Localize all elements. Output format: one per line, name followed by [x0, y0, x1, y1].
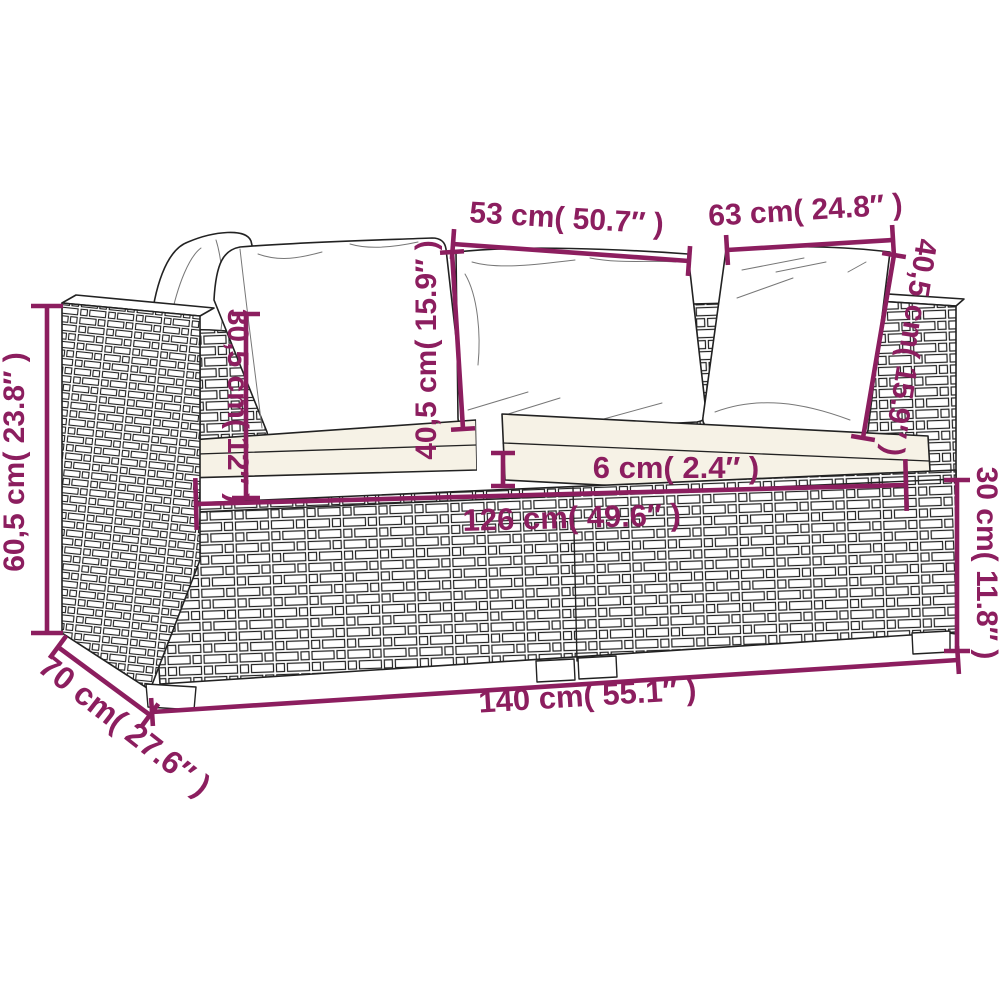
- dimension-label-total-width: 140 cm( 55.1″ ): [477, 671, 697, 719]
- dimension-label-left-back-cushion-height: 30,5 cm( 12″ ): [221, 309, 254, 503]
- dimension-label-left-back-cushion-width: 53 cm( 50.7″ ): [469, 196, 665, 241]
- dimension-label-base-height: 30 cm( 11.8″ ): [970, 467, 1000, 660]
- back-pillow-left: [456, 248, 706, 426]
- dimension-label-cushion-gap: 6 cm( 2.4″ ): [593, 450, 759, 485]
- dimension-label-right-back-cushion-width: 63 cm( 24.8″ ): [707, 188, 903, 233]
- dimension-armrest-height: 60,5 cm( 23.8″ ): [0, 306, 63, 633]
- dimension-label-seat-width: 126 cm( 49.6″ ): [462, 497, 681, 538]
- cushion-gap-face: [476, 414, 505, 480]
- sofa-drawing: [62, 232, 964, 710]
- back-pillow-right: [703, 247, 890, 439]
- dimension-label-armrest-height: 60,5 cm( 23.8″ ): [0, 352, 31, 572]
- dimension-label-center-back-cushion-height: 40,5 cm( 15.9″ ): [410, 240, 443, 460]
- dimension-left-back-cushion-height: 30,5 cm( 12″ ): [221, 309, 260, 503]
- sofa-dimension-diagram: 53 cm( 50.7″ )63 cm( 24.8″ )40,5 cm( 15.…: [0, 0, 1000, 1000]
